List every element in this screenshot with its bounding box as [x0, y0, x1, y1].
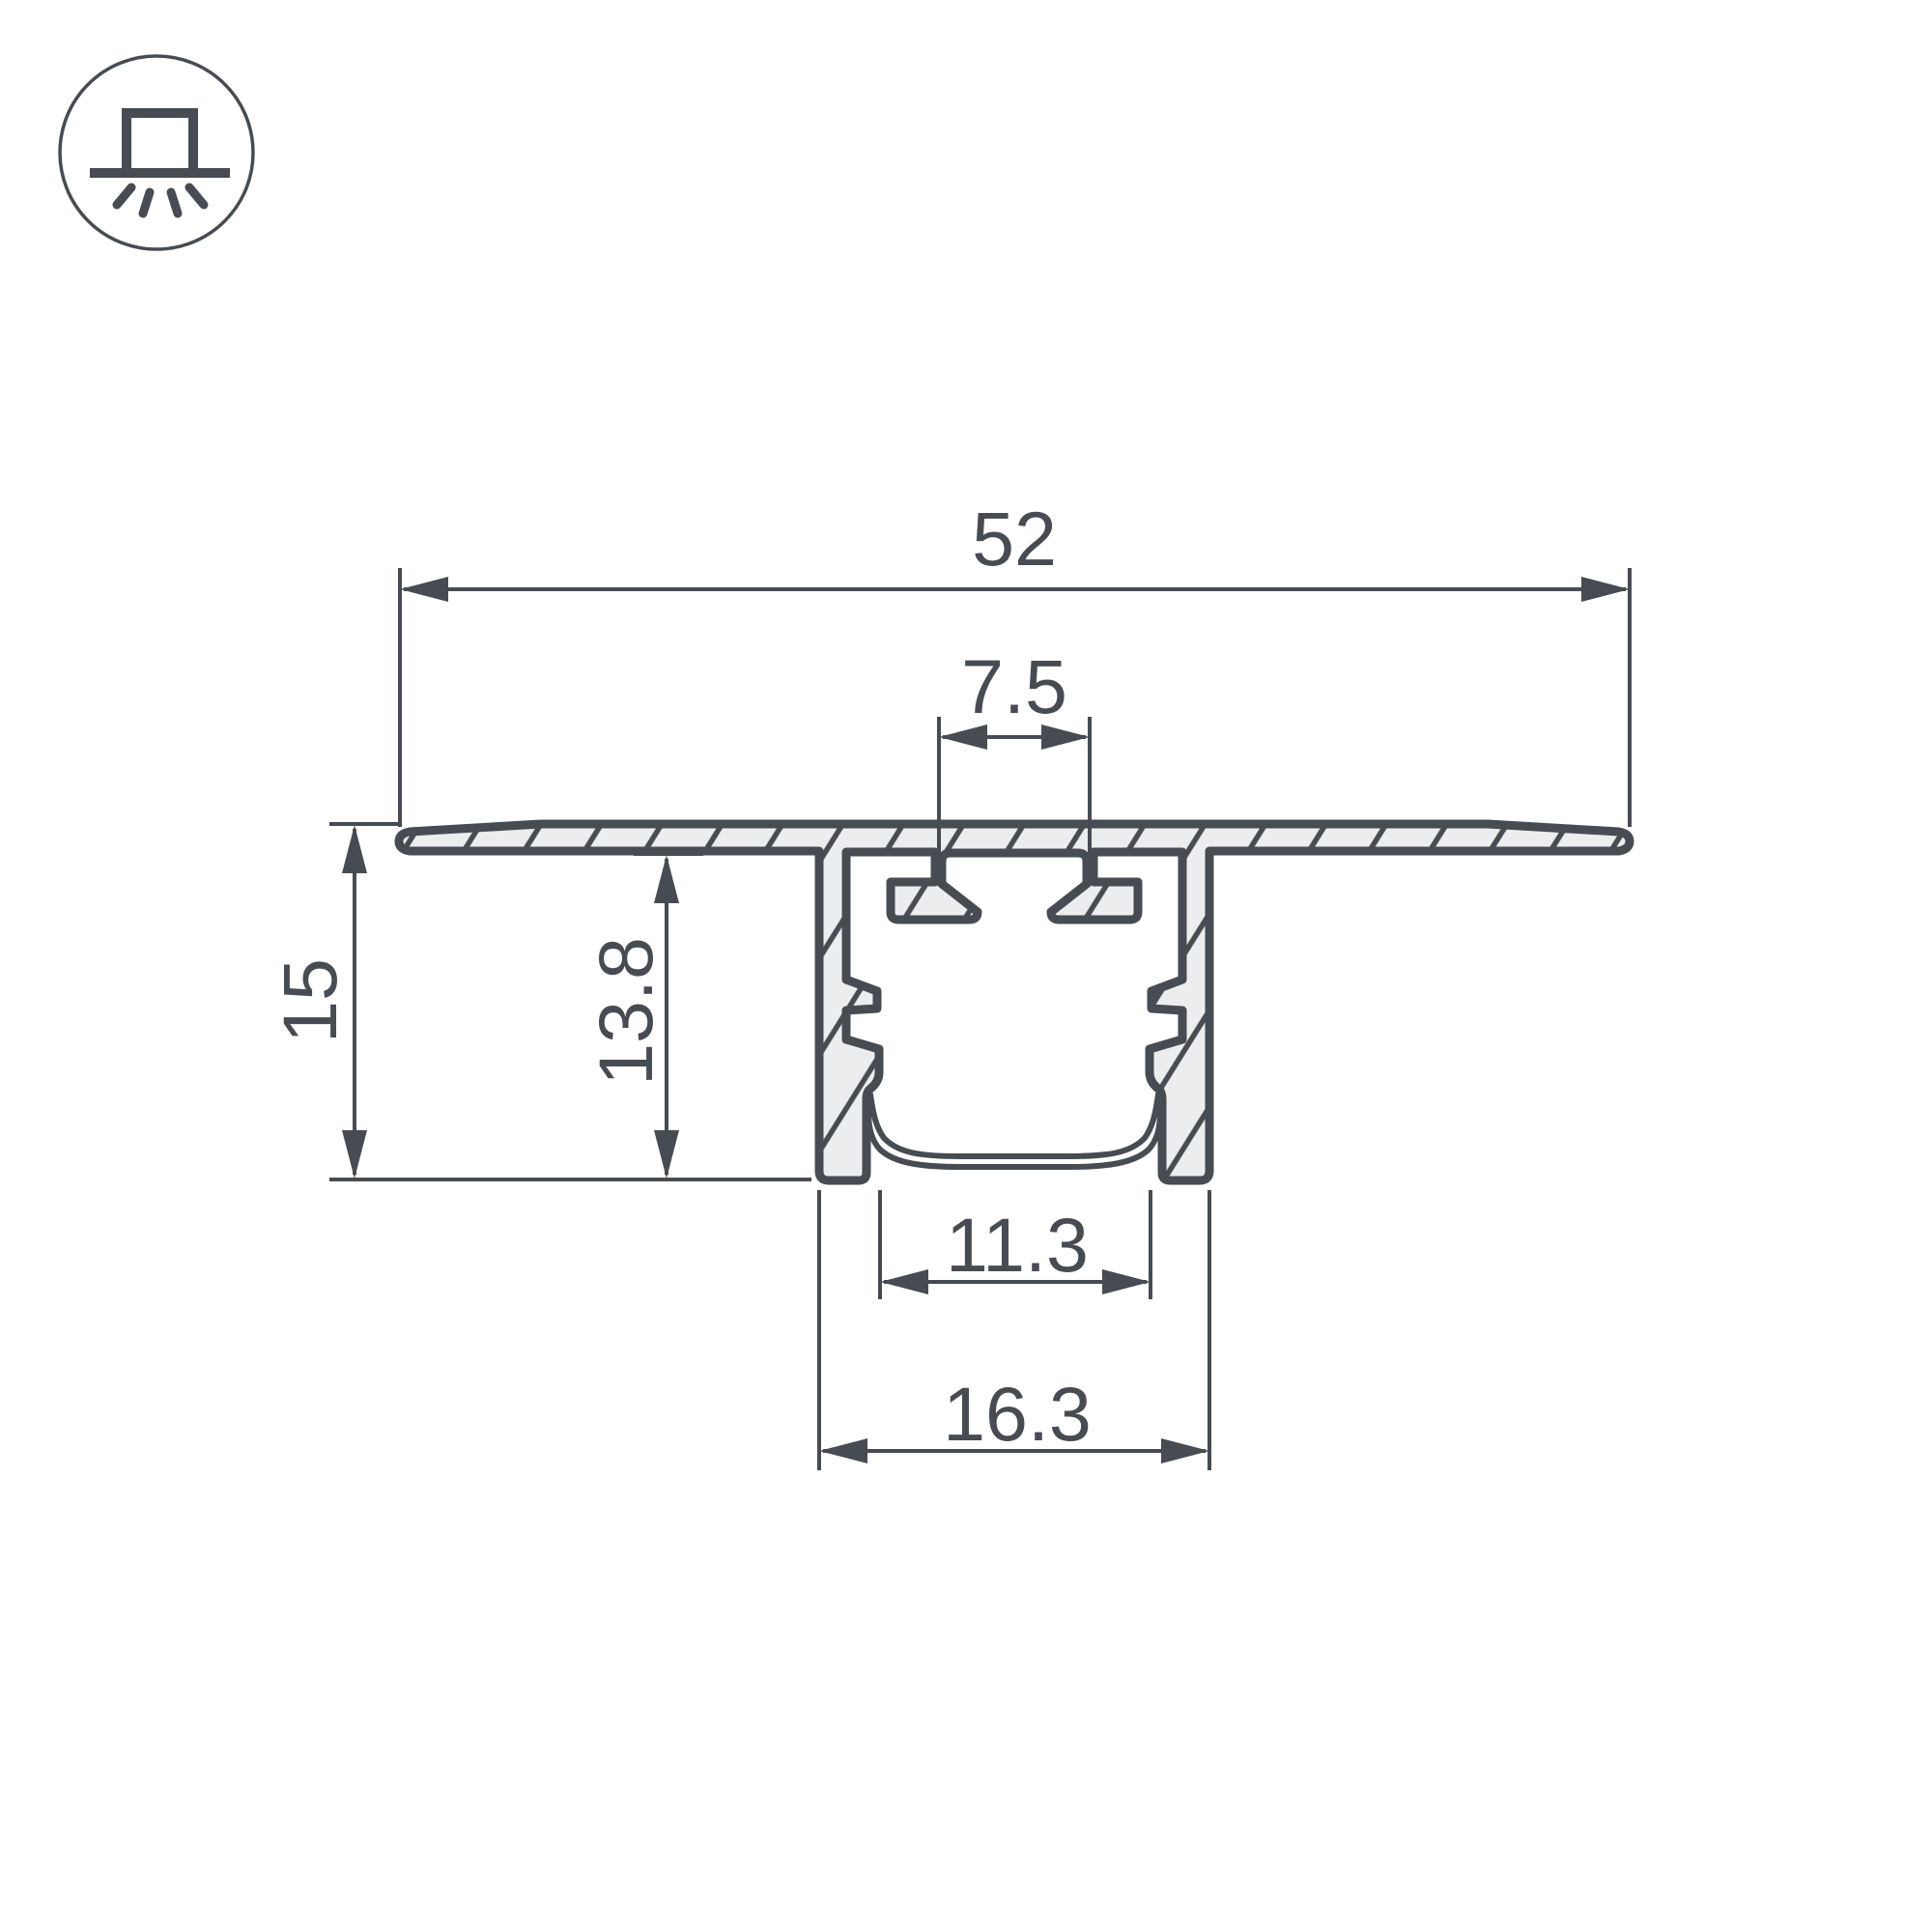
light-rays-icon — [117, 187, 204, 213]
diffuser-lens — [868, 1094, 1160, 1167]
dimension-label-52: 52 — [972, 496, 1057, 582]
dimension-total-height: 15 — [267, 824, 811, 1179]
dimension-inner-width: 11.3 — [880, 1190, 1151, 1299]
technical-drawing-page: 52 7.5 15 13.8 11.3 — [0, 0, 1932, 1932]
dimension-label-15: 15 — [267, 958, 353, 1043]
dimension-body-height: 13.8 — [582, 854, 703, 1179]
dimension-label-7-5: 7.5 — [961, 643, 1067, 729]
dimension-label-13-8: 13.8 — [582, 937, 668, 1086]
dimension-label-16-3: 16.3 — [943, 1371, 1092, 1457]
technical-drawing: 52 7.5 15 13.8 11.3 — [0, 0, 1932, 1932]
recessed-light-icon — [60, 56, 253, 249]
dimension-label-11-3: 11.3 — [946, 1202, 1089, 1288]
